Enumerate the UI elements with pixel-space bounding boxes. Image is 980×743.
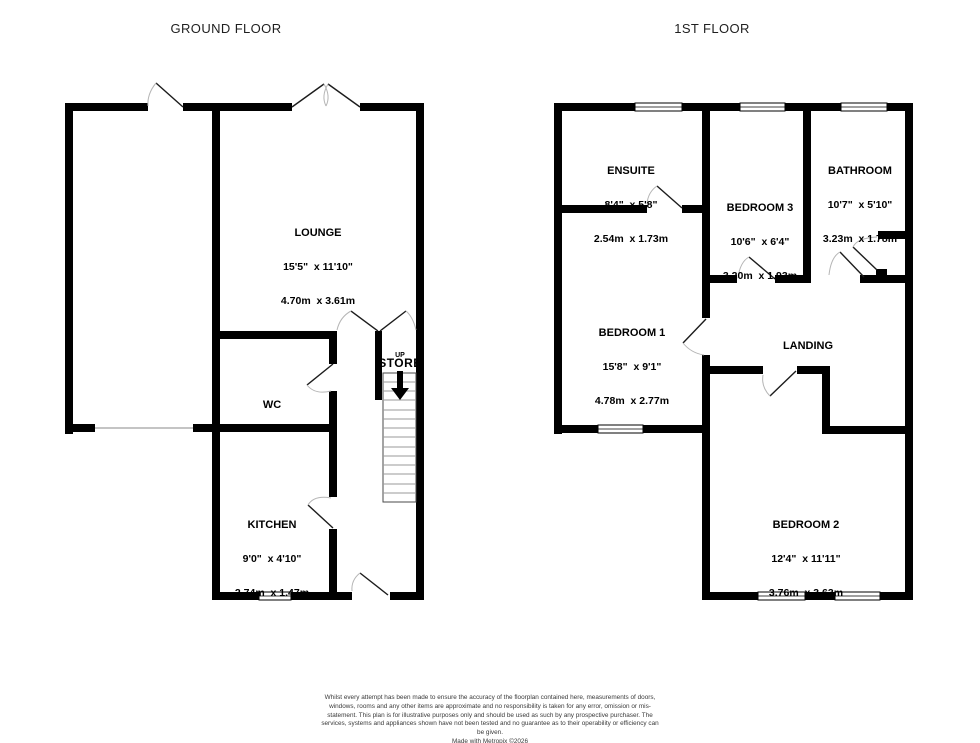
room-label-bedroom1: BEDROOM 1 15'8" x 9'1" 4.78m x 2.77m bbox=[595, 305, 669, 430]
credit-text: Made with Metropix ©2026 bbox=[0, 738, 980, 743]
room-dims-imperial: 9'0" x 4'10" bbox=[235, 554, 309, 565]
room-dims-imperial: 10'6" x 6'4" bbox=[723, 237, 797, 248]
room-name: BEDROOM 2 bbox=[769, 520, 843, 531]
room-dims-imperial: 15'5" x 11'10" bbox=[281, 262, 355, 273]
room-name: KITCHEN bbox=[235, 520, 309, 531]
room-label-ensuite: ENSUITE 8'4" x 5'8" 2.54m x 1.73m bbox=[594, 143, 668, 268]
room-label-wc: WC bbox=[263, 377, 281, 434]
room-name: BEDROOM 3 bbox=[723, 203, 797, 214]
room-label-bedroom3: BEDROOM 3 10'6" x 6'4" 3.20m x 1.93m bbox=[723, 180, 797, 305]
room-name: ENSUITE bbox=[594, 166, 668, 177]
room-dims-imperial: 8'4" x 5'8" bbox=[594, 200, 668, 211]
room-label-bathroom: BATHROOM 10'7" x 5'10" 3.23m x 1.78m bbox=[823, 143, 897, 268]
room-dims-metric: 3.23m x 1.78m bbox=[823, 234, 897, 245]
room-dims-imperial: 15'8" x 9'1" bbox=[595, 362, 669, 373]
disclaimer-text: Whilst every attempt has been made to en… bbox=[319, 694, 661, 738]
room-label-store: UP STORE bbox=[378, 352, 422, 367]
room-name: BATHROOM bbox=[823, 166, 897, 177]
room-name: STORE bbox=[378, 359, 422, 367]
room-dims-metric: 4.70m x 3.61m bbox=[281, 296, 355, 307]
room-dims-metric: 2.54m x 1.73m bbox=[594, 234, 668, 245]
bathroom-window bbox=[841, 103, 887, 111]
room-label-lounge: LOUNGE 15'5" x 11'10" 4.70m x 3.61m bbox=[281, 205, 355, 330]
room-label-bedroom2: BEDROOM 2 12'4" x 11'11" 3.76m x 3.63m bbox=[769, 497, 843, 622]
room-dims-metric: 2.74m x 1.47m bbox=[235, 588, 309, 599]
room-dims-imperial: 10'7" x 5'10" bbox=[823, 200, 897, 211]
footer: Whilst every attempt has been made to en… bbox=[0, 694, 980, 743]
room-name: BEDROOM 1 bbox=[595, 328, 669, 339]
room-name: LOUNGE bbox=[281, 228, 355, 239]
room-dims-metric: 4.78m x 2.77m bbox=[595, 396, 669, 407]
floorplan-page: GROUND FLOOR 1ST FLOOR bbox=[0, 0, 980, 743]
room-name: WC bbox=[263, 400, 281, 411]
room-dims-imperial: 12'4" x 11'11" bbox=[769, 554, 843, 565]
room-dims-metric: 3.76m x 3.63m bbox=[769, 588, 843, 599]
ensuite-window bbox=[635, 103, 682, 111]
room-dims-metric: 3.20m x 1.93m bbox=[723, 271, 797, 282]
room-label-kitchen: KITCHEN 9'0" x 4'10" 2.74m x 1.47m bbox=[235, 497, 309, 622]
bedroom3-window bbox=[740, 103, 785, 111]
room-name: LANDING bbox=[783, 341, 833, 352]
room-label-landing: LANDING bbox=[783, 318, 833, 375]
